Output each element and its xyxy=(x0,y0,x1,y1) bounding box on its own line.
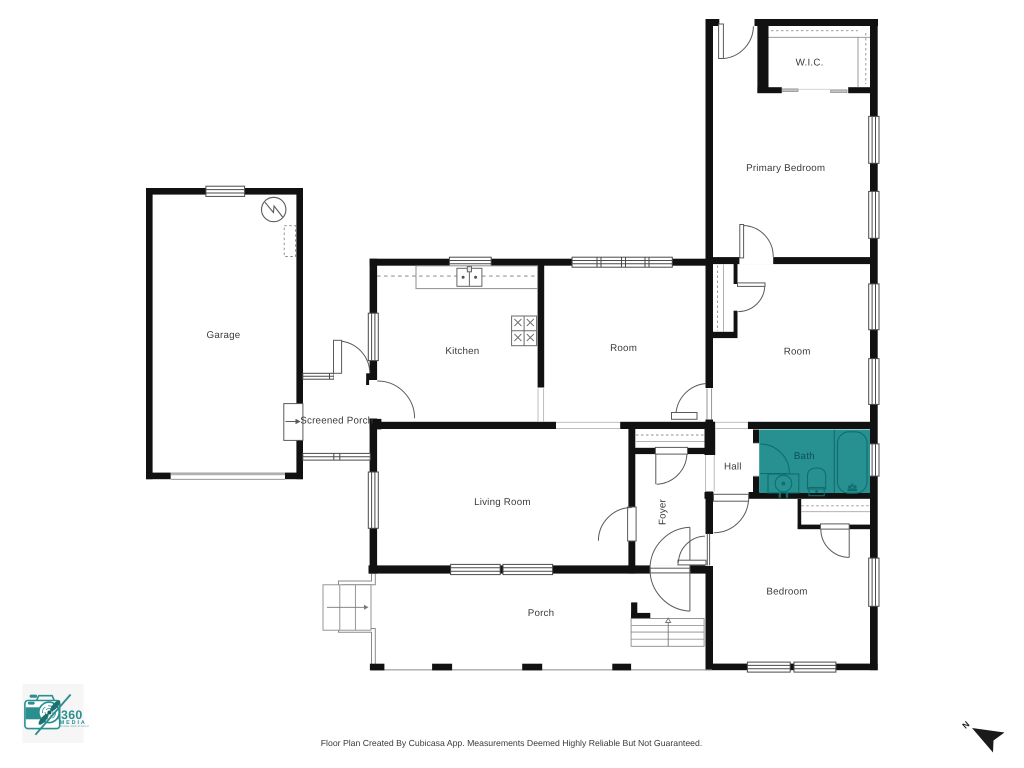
svg-text:AERIAL PHOTO VIDEO: AERIAL PHOTO VIDEO xyxy=(61,725,89,728)
svg-text:Room: Room xyxy=(610,343,637,354)
svg-text:Bedroom: Bedroom xyxy=(766,587,807,598)
svg-text:Living Room: Living Room xyxy=(474,497,531,508)
svg-text:Bath: Bath xyxy=(794,451,815,462)
svg-text:Room: Room xyxy=(784,347,811,358)
svg-text:Screened Porch: Screened Porch xyxy=(300,416,373,427)
svg-text:Kitchen: Kitchen xyxy=(445,346,479,357)
svg-text:Foyer: Foyer xyxy=(658,498,669,525)
svg-text:W.I.C.: W.I.C. xyxy=(796,58,824,69)
svg-text:Hall: Hall xyxy=(724,461,742,472)
svg-text:Primary Bedroom: Primary Bedroom xyxy=(746,163,825,174)
svg-text:Floor Plan Created By Cubicasa: Floor Plan Created By Cubicasa App. Meas… xyxy=(321,738,702,748)
svg-text:Porch: Porch xyxy=(528,608,555,619)
svg-text:Garage: Garage xyxy=(207,330,241,341)
